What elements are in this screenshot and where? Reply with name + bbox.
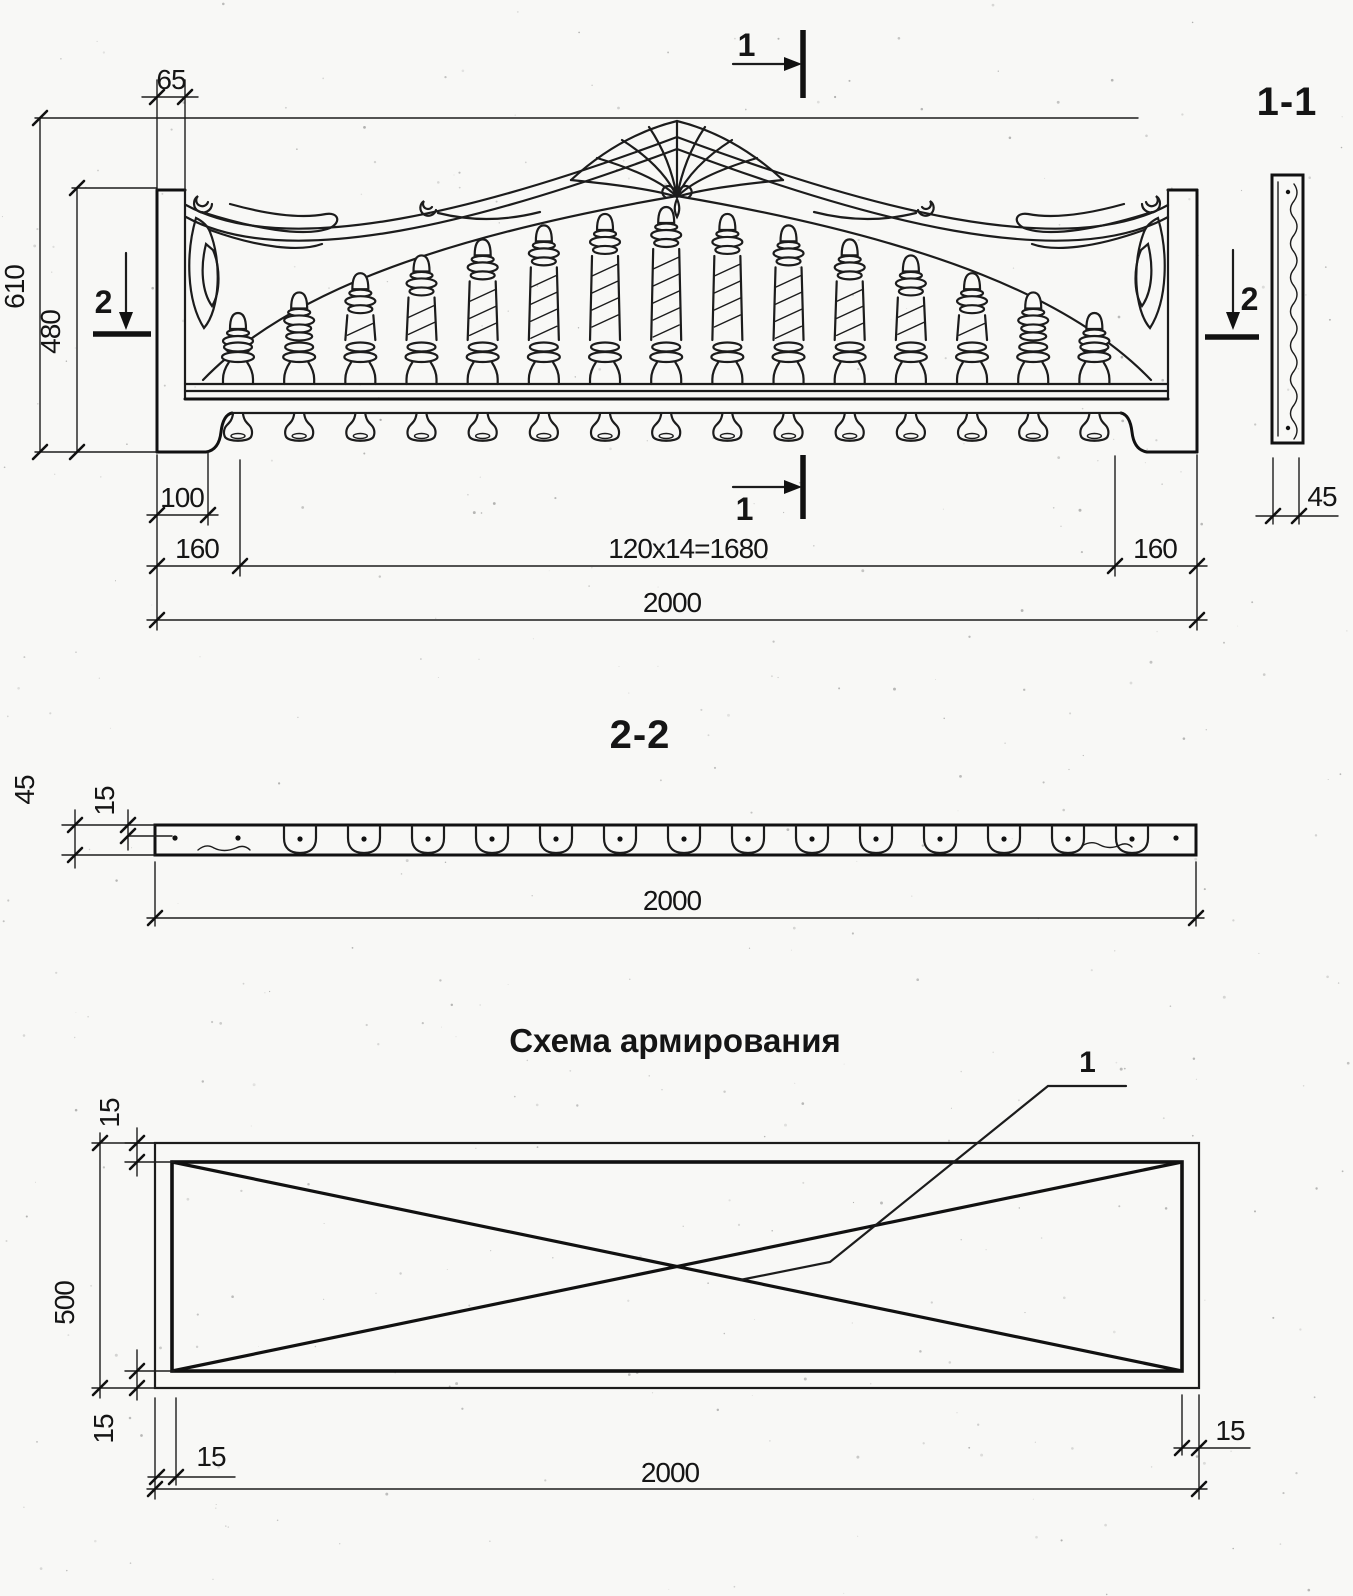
section-1-1-dot-bottom: [1286, 426, 1290, 430]
baluster-pocket: [668, 826, 700, 853]
baluster: [528, 225, 560, 384]
hanging-knob: [1080, 414, 1108, 441]
section-marker-1-top-label: 1: [738, 27, 755, 63]
dim-2-2-thickness: 45: [9, 775, 40, 805]
callout-1-label: 1: [1079, 1046, 1095, 1079]
baluster-pocket: [796, 826, 828, 853]
reinforcement-view: [155, 1086, 1199, 1388]
baluster: [344, 273, 376, 384]
dim-foot-width: 100: [160, 482, 204, 513]
baluster: [834, 239, 866, 384]
hanging-knob: [346, 414, 374, 441]
callout-leader: [740, 1086, 1126, 1280]
baluster-pocket: [1052, 826, 1084, 853]
baluster-pocket: [860, 826, 892, 853]
hanging-knob: [285, 414, 313, 441]
baluster: [467, 239, 499, 384]
baluster: [222, 313, 254, 384]
baluster-pocket: [476, 826, 508, 853]
hanging-knob: [469, 414, 497, 441]
hanging-knob: [897, 414, 925, 441]
hanging-knob: [407, 414, 435, 441]
corner-scroll-left: [189, 196, 337, 328]
baluster: [956, 273, 988, 384]
dim-cover-left: 15: [196, 1441, 226, 1472]
dim-width-total: 2000: [643, 587, 702, 618]
baluster-pocket: [732, 826, 764, 853]
rebar-dot: [1173, 835, 1178, 840]
section-1-1-outline: [1272, 175, 1303, 443]
hanging-knob: [1019, 414, 1047, 441]
baluster: [406, 255, 438, 384]
hanging-knob: [652, 414, 680, 441]
section-marker-2-left-label: 2: [95, 284, 112, 320]
dim-2-2-bar-depth: 15: [89, 786, 120, 816]
baluster-pocket: [1116, 826, 1148, 853]
dim-scheme-length: 2000: [641, 1457, 700, 1488]
section-1-1-view: [1272, 175, 1303, 443]
section-1-1-dot-top: [1286, 190, 1290, 194]
dim-margin-left: 160: [175, 533, 219, 564]
baluster-pocket: [604, 826, 636, 853]
hanging-knob: [774, 414, 802, 441]
baluster: [895, 255, 927, 384]
hanging-knob: [591, 414, 619, 441]
dim-height-inner: 480: [35, 310, 66, 354]
dim-2-2-length: 2000: [643, 885, 702, 916]
hanging-knob: [224, 414, 252, 441]
dim-post-width: 65: [156, 64, 186, 95]
baluster: [283, 292, 315, 384]
rebar-dot: [235, 835, 240, 840]
baluster-pocket: [924, 826, 956, 853]
section-1-1-profile: [1291, 184, 1298, 439]
dim-margin-right: 160: [1133, 533, 1177, 564]
palmette-ornament: [571, 121, 783, 217]
section-marker-2-right-label: 2: [1241, 281, 1258, 317]
hanging-knob: [530, 414, 558, 441]
break-mark-left: [198, 846, 250, 851]
baluster: [1017, 292, 1049, 384]
baluster: [773, 225, 805, 384]
section-2-2-title: 2-2: [610, 713, 671, 757]
left-foot: [157, 413, 232, 452]
baluster: [589, 214, 621, 384]
dim-1-1-thickness: 45: [1307, 481, 1337, 512]
section-1-1-title: 1-1: [1257, 80, 1318, 124]
rebar-dot: [172, 835, 177, 840]
section-2-2-view: [155, 825, 1196, 855]
dim-scheme-height: 500: [49, 1281, 80, 1325]
baluster: [711, 214, 743, 384]
drawing-sheet: 65 610 480 2 2 1 1 100 160 120x14=1680 1…: [0, 0, 1353, 1596]
dim-cover-top: 15: [94, 1098, 125, 1128]
hanging-knob: [958, 414, 986, 441]
baluster: [1078, 313, 1110, 384]
baluster: [650, 207, 682, 384]
baluster-pocket: [540, 826, 572, 853]
reinforcement-title: Схема армирования: [509, 1022, 841, 1059]
break-mark-right: [1082, 843, 1132, 848]
elevation-view: [157, 121, 1197, 452]
right-foot: [1121, 413, 1197, 452]
dim-baluster-spacing: 120x14=1680: [608, 533, 768, 564]
dim-height-total: 610: [0, 265, 30, 309]
dim-cover-bottom: 15: [88, 1414, 119, 1444]
baluster-pocket: [348, 826, 380, 853]
baluster-pocket: [284, 826, 316, 853]
hanging-knob: [713, 414, 741, 441]
baluster-pocket: [988, 826, 1020, 853]
dim-cover-right: 15: [1215, 1415, 1245, 1446]
baluster-pocket: [412, 826, 444, 853]
hanging-knob: [836, 414, 864, 441]
section-marker-1-bottom-label: 1: [736, 491, 753, 527]
